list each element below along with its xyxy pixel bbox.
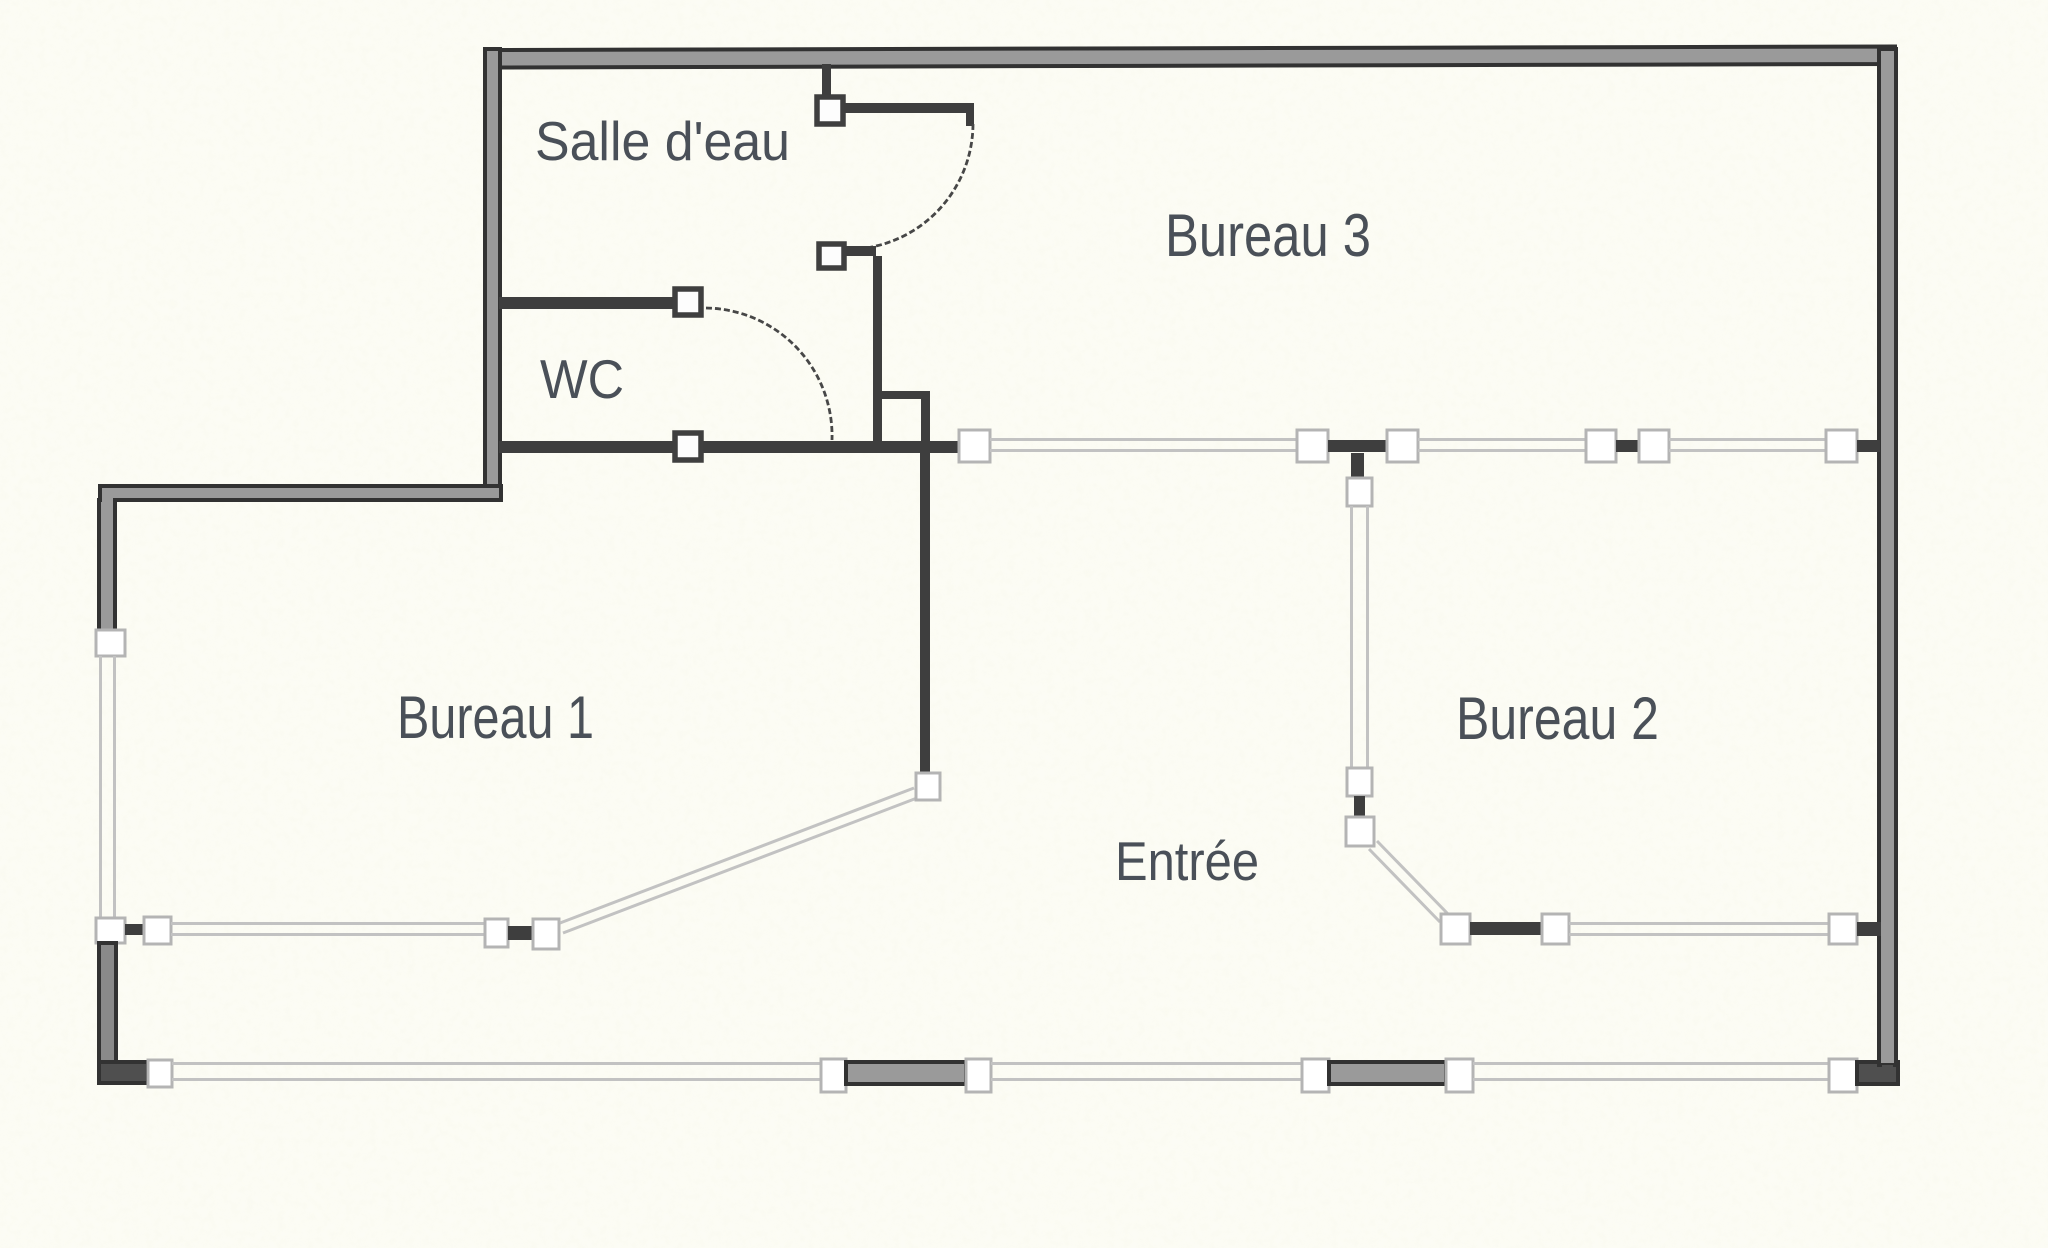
svg-text:Bureau 3: Bureau 3 bbox=[1165, 202, 1371, 269]
svg-text:Bureau 1: Bureau 1 bbox=[397, 684, 594, 751]
svg-text:Entrée: Entrée bbox=[1115, 830, 1259, 892]
svg-text:WC: WC bbox=[540, 348, 624, 410]
svg-text:Bureau 2: Bureau 2 bbox=[1456, 685, 1659, 752]
svg-text:Salle d'eau: Salle d'eau bbox=[535, 110, 790, 172]
